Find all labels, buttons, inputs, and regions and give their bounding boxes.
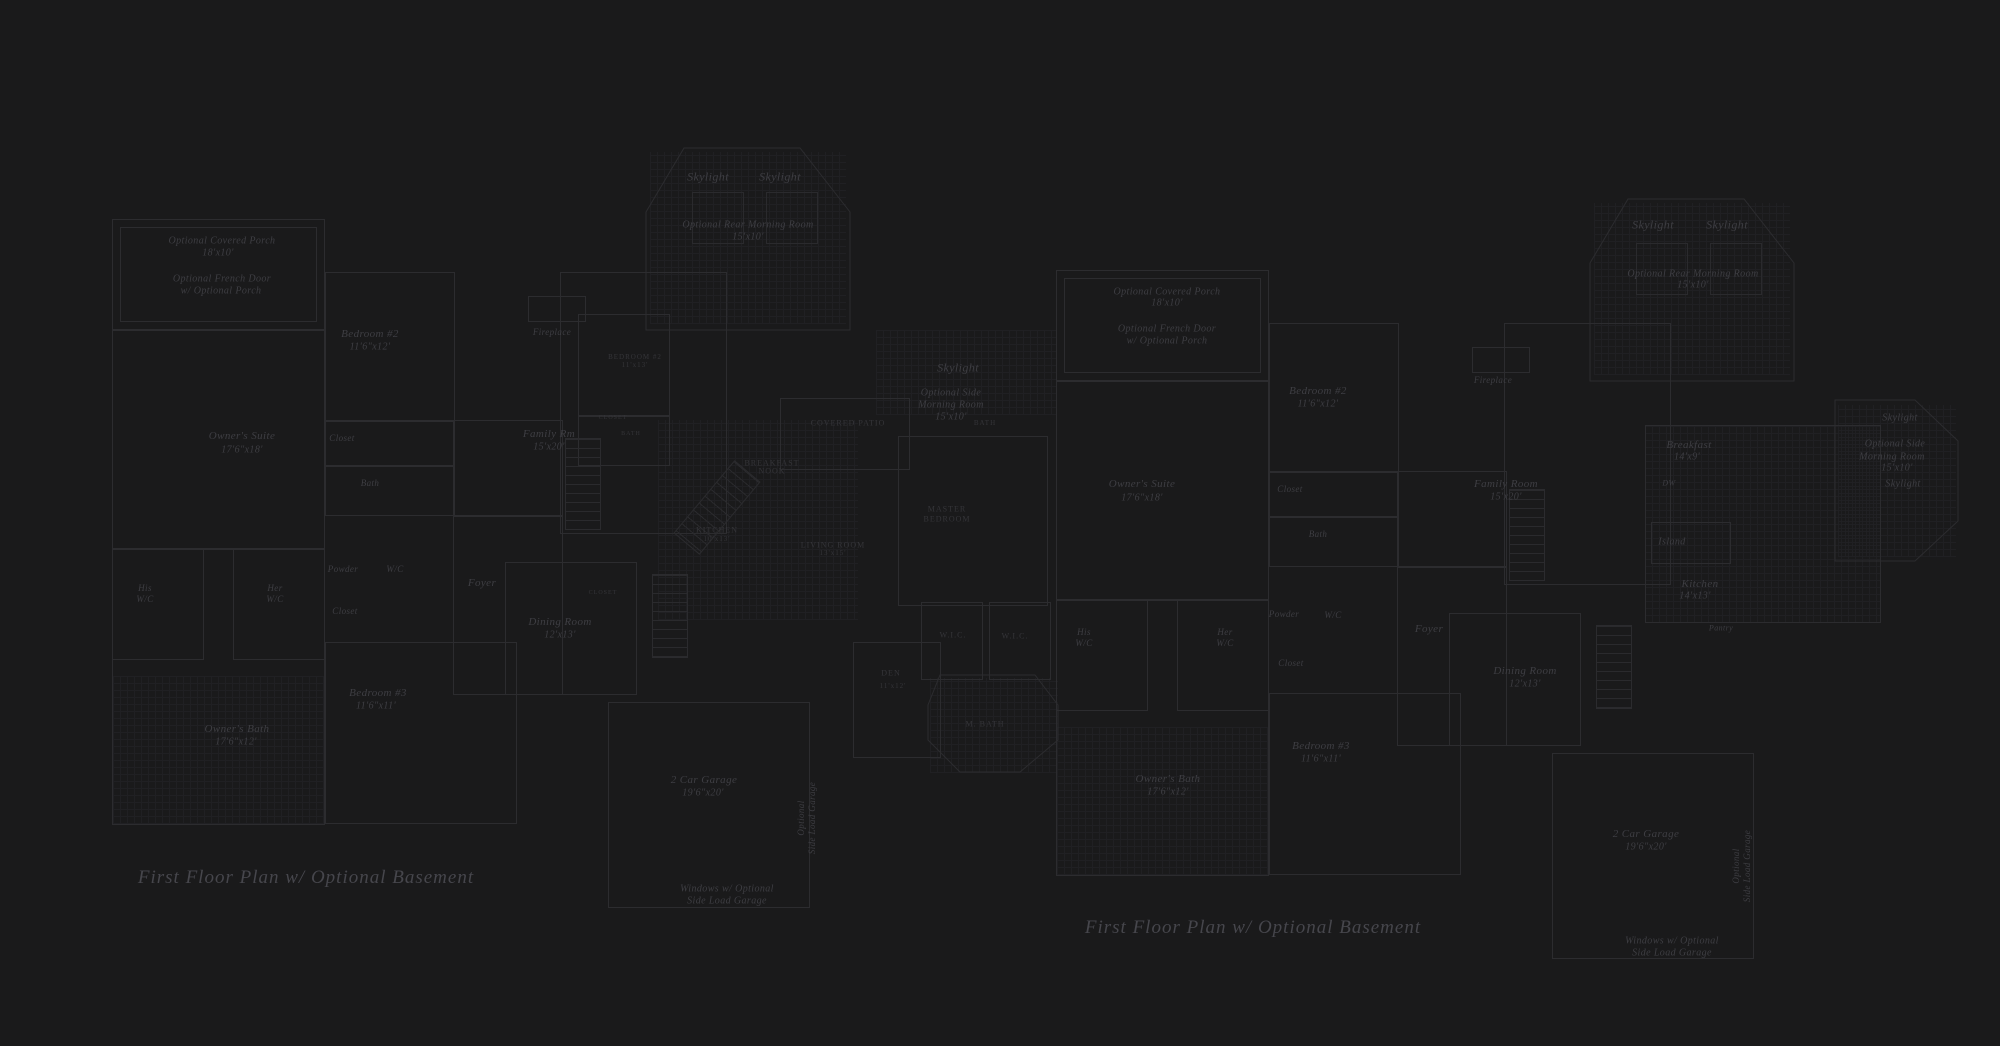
wall [608, 702, 810, 908]
room-label: Breakfast [1666, 439, 1711, 451]
room-label: Fireplace [1474, 375, 1512, 385]
room-label: Her [267, 583, 282, 593]
room-label: 11'x13' [622, 361, 649, 369]
wall [1177, 599, 1269, 711]
plan-title: First Floor Plan w/ Optional Basement [1085, 917, 1421, 939]
room-label: 2 Car Garage [1613, 828, 1680, 840]
wall [1552, 753, 1754, 959]
blueprint-canvas: Optional Covered Porch18'x10'Optional Fr… [0, 0, 2000, 1046]
room-label: Windows w/ Optional [680, 884, 774, 895]
room-label: 17'6"x18' [221, 445, 263, 456]
wall [325, 465, 455, 467]
room-label: Foyer [468, 577, 496, 589]
room-label: Optional Side [1865, 439, 1925, 450]
room-label: Pantry [1709, 624, 1733, 633]
room-label: Morning Room [918, 400, 984, 411]
room-label: W/C [266, 594, 283, 604]
room-label: Skylight [687, 170, 729, 185]
wall [898, 436, 1048, 606]
room-label: Optional French Door [173, 274, 271, 285]
wall [989, 602, 1051, 680]
room-label: His [1077, 627, 1091, 637]
room-label: CLOSET [599, 415, 628, 421]
room-label: 10'x13' [703, 535, 730, 543]
room-label: Dining Room [1493, 665, 1556, 677]
room-label: 15'x20' [533, 442, 565, 453]
room-label: W/C [136, 594, 153, 604]
room-label: 15'x10' [1677, 280, 1709, 291]
room-label: Side Load Garage [1632, 948, 1712, 959]
room-label: 17'6"x12' [215, 737, 257, 748]
plan-title: First Floor Plan w/ Optional Basement [138, 867, 474, 889]
room-label: Skylight [937, 361, 979, 376]
wall [233, 548, 325, 660]
room-label: Foyer [1415, 623, 1443, 635]
stairs [1596, 625, 1632, 709]
room-label: 15'x10' [732, 232, 764, 243]
room-label: M. BATH [965, 720, 1004, 729]
room-label: Optional [796, 800, 806, 835]
room-label: Skylight [759, 170, 801, 185]
wall [505, 562, 637, 695]
room-label: KITCHEN [696, 526, 738, 535]
wall [1269, 471, 1399, 473]
room-label: Skylight [1882, 413, 1917, 424]
room-label: 18'x10' [202, 248, 234, 259]
room-label: Skylight [1632, 218, 1674, 233]
room-label: 11'6"x11' [1301, 754, 1341, 765]
room-label: Island [1658, 537, 1685, 548]
skylight-frame [766, 192, 818, 244]
room-label: 11'6"x12' [350, 342, 391, 353]
room-label: 15'x10' [935, 412, 967, 423]
room-label: Owner's Suite [209, 430, 276, 442]
room-label: W.I.C. [1002, 632, 1029, 641]
wall [112, 548, 204, 660]
room-label: Bath [361, 478, 380, 488]
room-label: 15'x20' [1490, 492, 1522, 503]
stairs [652, 574, 688, 658]
room-label: 17'6"x18' [1121, 493, 1163, 504]
room-label: Morning Room [1859, 452, 1925, 463]
wall [921, 602, 983, 680]
room-label: Kitchen [1681, 578, 1718, 590]
wall [1472, 347, 1530, 373]
room-label: 12'x13' [544, 630, 576, 641]
room-label: w/ Optional Porch [1127, 336, 1208, 347]
room-label: Optional [1731, 848, 1741, 883]
room-label: Optional Side [921, 388, 981, 399]
room-label: 11'6"x11' [356, 701, 396, 712]
wall [1397, 566, 1507, 568]
wall [1269, 516, 1399, 518]
room-label: DEN [881, 669, 900, 678]
room-label: BATH [974, 419, 996, 427]
room-label: His [138, 583, 152, 593]
room-label: Bedroom #3 [1292, 740, 1350, 752]
room-label: Optional Covered Porch [1114, 287, 1221, 298]
wall [1056, 599, 1148, 711]
wall [453, 515, 563, 517]
room-label: Optional Rear Morning Room [1627, 269, 1758, 280]
room-label: Closet [1278, 658, 1303, 668]
room-label: Family Rm [523, 428, 575, 440]
room-label: BEDROOM [923, 515, 970, 524]
room-label: CLOSET [589, 590, 618, 596]
room-label: Side Load Garage [687, 896, 767, 907]
room-label: COVERED PATIO [811, 419, 886, 428]
room-label: 18'x10' [1151, 298, 1183, 309]
stairs [1509, 489, 1545, 581]
room-label: Owner's Bath [1136, 773, 1201, 785]
room-label: MASTER [928, 505, 966, 514]
room-label: Owner's Bath [205, 723, 270, 735]
room-label: Family Room [1474, 478, 1538, 490]
room-label: NOOK [758, 467, 785, 476]
room-label: Closet [1277, 484, 1302, 494]
wall [1269, 323, 1399, 567]
room-label: Side Load Garage [1742, 830, 1752, 902]
room-label: 14'x9' [1674, 452, 1700, 463]
room-label: Closet [332, 606, 357, 616]
room-label: 17'6"x12' [1147, 787, 1189, 798]
room-label: 19'6"x20' [682, 788, 724, 799]
room-label: Optional Covered Porch [169, 236, 276, 247]
room-label: Bedroom #3 [349, 687, 407, 699]
room-label: 15'x10' [1881, 463, 1913, 474]
room-label: 12'x13' [1509, 679, 1541, 690]
room-label: 14'x13' [1679, 591, 1711, 602]
room-label: W.I.C. [940, 631, 967, 640]
room-label: Powder [1269, 609, 1299, 619]
room-label: 11'x12' [880, 682, 907, 690]
room-label: 13'x15' [819, 549, 846, 557]
wall [325, 272, 455, 516]
room-label: BEDROOM #2 [608, 353, 662, 361]
room-label: Fireplace [533, 327, 571, 337]
room-label: Owner's Suite [1109, 478, 1176, 490]
room-label: Optional French Door [1118, 324, 1216, 335]
stairs [565, 438, 601, 530]
room-label: Bedroom #2 [1289, 385, 1347, 397]
room-label: Windows w/ Optional [1625, 936, 1719, 947]
room-label: 11'6"x12' [1298, 399, 1339, 410]
wall [325, 420, 455, 422]
room-label: Bath [1309, 529, 1328, 539]
room-label: W/C [1075, 638, 1092, 648]
room-label: Skylight [1885, 479, 1920, 490]
room-label: Side Load Garage [807, 782, 817, 854]
room-label: Her [1217, 627, 1232, 637]
room-label: BATH [621, 431, 641, 437]
room-label: W/C [1216, 638, 1233, 648]
room-label: Optional Rear Morning Room [682, 220, 813, 231]
room-label: w/ Optional Porch [181, 286, 262, 297]
room-label: 19'6"x20' [1625, 842, 1667, 853]
room-label: Dining Room [528, 616, 591, 628]
room-label: Bedroom #2 [341, 328, 399, 340]
room-label: Skylight [1706, 218, 1748, 233]
room-label: DW [1662, 479, 1675, 488]
room-label: W/C [1324, 610, 1341, 620]
room-label: 2 Car Garage [671, 774, 738, 786]
room-label: W/C [386, 564, 403, 574]
room-label: Closet [329, 433, 354, 443]
room-label: Powder [328, 564, 358, 574]
